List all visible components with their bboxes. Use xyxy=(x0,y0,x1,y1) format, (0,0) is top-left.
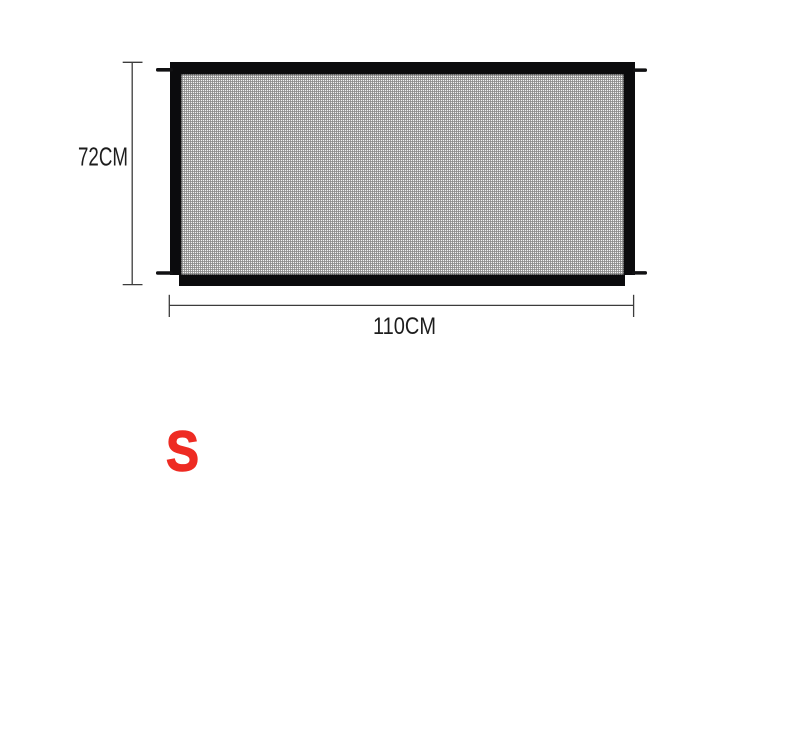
svg-text:S: S xyxy=(166,420,199,484)
svg-text:110CM: 110CM xyxy=(373,313,436,340)
svg-text:72CM: 72CM xyxy=(78,144,128,172)
